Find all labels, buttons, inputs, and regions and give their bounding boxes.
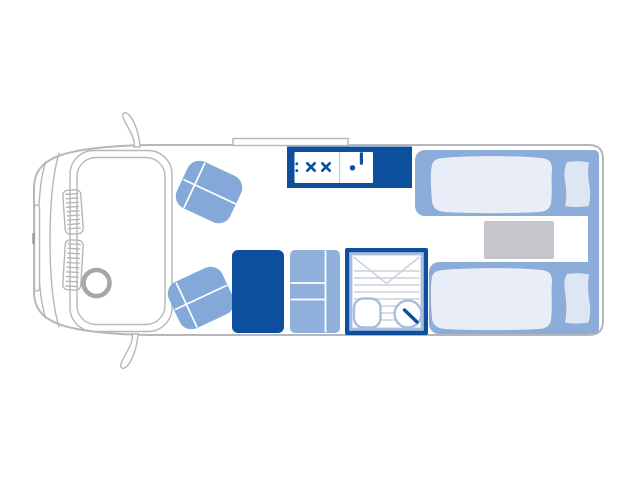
bumper-insert [35,205,40,291]
side-mirror-top-icon [123,113,140,147]
hob-knob-2 [295,169,298,172]
storage-step [484,221,554,259]
side-mirror-bottom-icon [121,334,138,368]
bumper-mark [32,233,35,244]
sink-drain-icon [350,165,355,170]
duvet-top [431,156,552,213]
kitchen-counter [287,147,412,189]
roof-vent [233,139,348,146]
sink-tap-icon [360,152,363,165]
toilet-icon [354,299,381,328]
motorhome-floorplan [0,0,640,480]
washroom [345,248,428,335]
hob-knob-1 [295,162,298,165]
pillow-bottom [564,273,590,323]
duvet-bottom [431,268,552,330]
kitchen-cabinet [290,250,340,333]
wardrobe [232,250,284,333]
pillow-top [564,161,590,207]
floorplan-canvas [0,0,640,480]
